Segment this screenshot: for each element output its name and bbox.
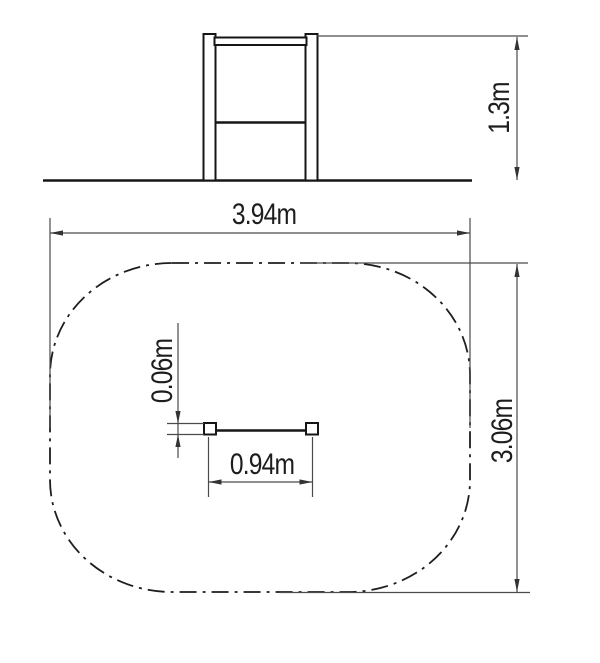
- arrow-up-icon: [514, 37, 519, 50]
- elevation-view: [43, 34, 528, 181]
- bar-length-label: 0.94m: [230, 450, 294, 480]
- arrow-right-icon: [457, 230, 470, 235]
- arrow-right-icon: [300, 479, 313, 484]
- zone-width-label: 3.94m: [232, 200, 296, 230]
- plan-view: [50, 218, 530, 593]
- arrow-down-icon: [514, 167, 519, 180]
- post-thickness-label: 0.06m: [148, 339, 178, 403]
- structure-height-label: 1.3m: [485, 82, 515, 133]
- arrow-up-icon: [175, 435, 180, 448]
- arrow-left-icon: [209, 479, 222, 484]
- right-post-section: [306, 423, 318, 435]
- technical-drawing: 1.3m 3.94m 3.06m 0.06m 0.94m: [0, 0, 600, 663]
- arrow-left-icon: [50, 230, 63, 235]
- arrow-down-icon: [175, 411, 180, 424]
- safety-zone-outline: [50, 263, 470, 592]
- arrow-down-icon: [514, 579, 519, 592]
- top-bar: [215, 38, 307, 46]
- left-post-section: [204, 423, 216, 435]
- left-post: [204, 34, 216, 181]
- zone-depth-label: 3.06m: [488, 399, 518, 463]
- right-post: [306, 34, 318, 181]
- arrow-up-icon: [514, 264, 519, 277]
